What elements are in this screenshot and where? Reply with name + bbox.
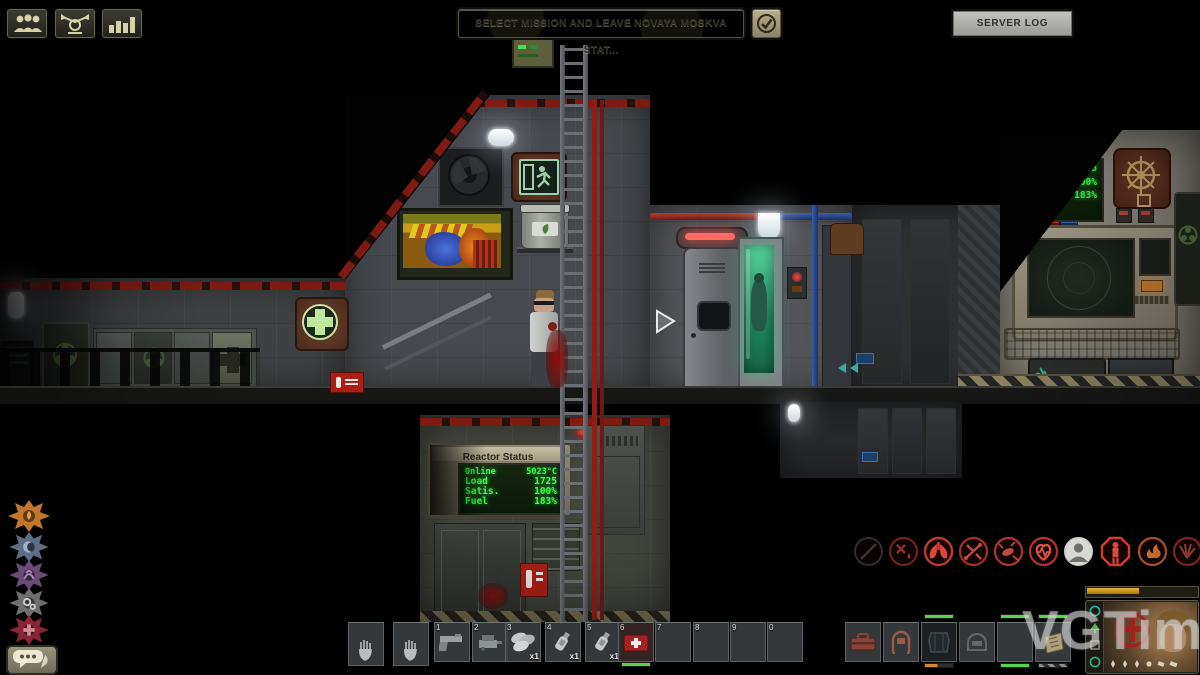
mission-stats-button[interactable] xyxy=(102,9,142,38)
moon-sigil[interactable] xyxy=(8,532,50,562)
equip-slot-helmet[interactable] xyxy=(959,622,995,662)
checkmark-icon xyxy=(757,14,776,33)
hand-icon xyxy=(357,639,375,661)
pistol-icon xyxy=(439,632,465,652)
hotbar-slot-1[interactable]: 1 xyxy=(434,622,470,662)
affliction-bleeding[interactable] xyxy=(888,536,919,567)
tentacle-sigil[interactable] xyxy=(8,560,50,590)
select-mission-label: SELECT MISSION AND LEAVE NOVAYA MOSKVA S… xyxy=(475,17,727,56)
slot-number: 0 xyxy=(769,623,773,632)
chat-bubble-icon xyxy=(12,649,52,669)
flame-sigil[interactable] xyxy=(8,500,50,532)
helmet-ghost-icon xyxy=(965,631,989,653)
slot-number: 5 xyxy=(587,623,591,632)
hotbar-slot-9[interactable]: 9 xyxy=(730,622,766,662)
slot-number: 2 xyxy=(474,623,478,632)
condition-bar xyxy=(924,614,954,619)
medic-sigil[interactable] xyxy=(8,615,50,645)
crew-icon xyxy=(12,13,42,33)
hotbar-slot-2[interactable]: 2 xyxy=(472,622,508,662)
affliction-stun[interactable] xyxy=(1100,536,1131,567)
stats-icon xyxy=(108,14,136,33)
select-mission-button[interactable]: SELECT MISSION AND LEAVE NOVAYA MOSKVA S… xyxy=(458,9,744,38)
condition-bar xyxy=(621,662,651,667)
slot-count: x1 xyxy=(530,651,539,661)
hotbar-slot-6[interactable]: 6 xyxy=(618,622,654,662)
hand-slot-right[interactable] xyxy=(393,622,429,666)
equip-slot-diving-mask[interactable] xyxy=(883,622,919,662)
chat-orders-button[interactable] xyxy=(55,9,95,38)
affliction-paralysis[interactable] xyxy=(1172,536,1200,567)
tank-bundle-icon xyxy=(509,631,537,653)
affliction-blood-loss[interactable] xyxy=(993,536,1024,567)
watermark: VGTimes xyxy=(1022,598,1200,662)
affliction-gunshot[interactable] xyxy=(853,536,884,567)
condition-bar xyxy=(1038,663,1068,668)
hotbar-slot-8[interactable]: 8 xyxy=(693,622,729,662)
affliction-heart-rate[interactable] xyxy=(1028,536,1059,567)
welding-tool-icon xyxy=(477,632,503,652)
crew-list-button[interactable] xyxy=(7,9,47,38)
medkit-icon xyxy=(623,632,649,652)
affliction-fracture[interactable] xyxy=(958,536,989,567)
game-screen: 1725 Satis.100% Fuel183% xyxy=(0,0,1200,675)
diving-mask-icon xyxy=(889,630,913,654)
slot-number: 4 xyxy=(547,623,551,632)
command-icon xyxy=(60,13,90,34)
slot-number: 9 xyxy=(732,623,736,632)
hud-layer: SELECT MISSION AND LEAVE NOVAYA MOSKVA S… xyxy=(0,0,1200,675)
slot-number: 8 xyxy=(695,623,699,632)
equip-slot-body-armor[interactable] xyxy=(921,622,957,662)
slot-number: 7 xyxy=(657,623,661,632)
gears-sigil[interactable] xyxy=(8,588,50,618)
affliction-character[interactable] xyxy=(1063,536,1094,567)
hand-slot-left[interactable] xyxy=(348,622,384,666)
affliction-burn[interactable] xyxy=(1137,536,1168,567)
body-armor-icon xyxy=(927,630,951,654)
hotbar-slot-3[interactable]: 3 x1 xyxy=(505,622,541,662)
affliction-oxygen-low[interactable] xyxy=(923,536,954,567)
hotbar-slot-0[interactable]: 0 xyxy=(767,622,803,662)
ready-check-button[interactable] xyxy=(752,9,781,38)
toolbox-icon xyxy=(850,633,876,651)
server-log-label: SERVER LOG xyxy=(977,18,1048,29)
slot-count: x1 xyxy=(570,651,579,661)
equip-slot-toolbox[interactable] xyxy=(845,622,881,662)
condition-bar xyxy=(1000,663,1030,668)
hand-icon xyxy=(402,639,420,661)
hotbar-slot-7[interactable]: 7 xyxy=(655,622,691,662)
xp-bar xyxy=(1085,586,1199,598)
chat-button[interactable] xyxy=(6,645,58,675)
hotbar-slot-4[interactable]: 4 x1 xyxy=(545,622,581,662)
slot-number: 1 xyxy=(436,623,440,632)
server-log-button[interactable]: SERVER LOG xyxy=(953,11,1072,36)
hotbar-slot-5[interactable]: 5 x1 xyxy=(585,622,621,662)
condition-bar xyxy=(924,663,954,668)
slot-number: 6 xyxy=(620,623,624,632)
